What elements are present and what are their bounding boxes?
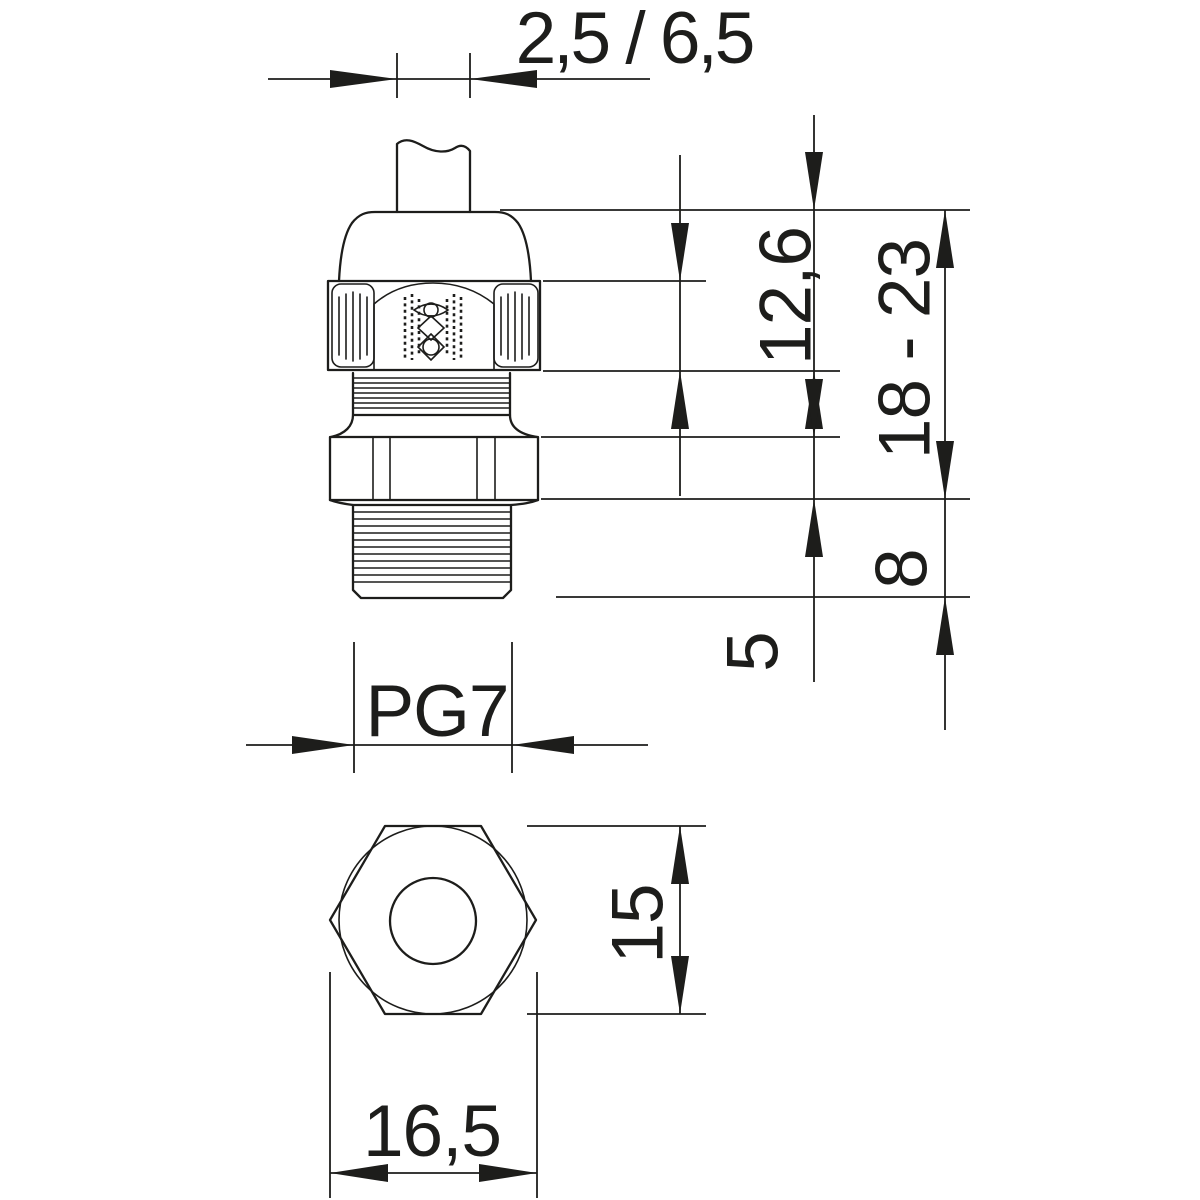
technical-drawing-page: 2,5 / 6,5 12,6 5 18 - 23 8 [0,0,1200,1200]
neck-upper [331,415,537,437]
arrow-right-icon [292,736,354,754]
arrow-down-icon [671,956,689,1014]
dimension-hex-height [671,155,689,496]
label-across-corners: 16,5 [363,1091,501,1172]
brand-mark-circle [423,339,439,355]
dimension-total-height: 18 - 23 8 [861,210,954,730]
rib-lines [353,378,510,408]
flange-facet-lines [373,437,495,500]
dimension-across-corners: 16,5 [330,972,537,1198]
dimension-clamping-range: 2,5 / 6,5 [268,0,753,98]
arrow-right-icon [330,70,397,88]
dimension-across-flats: 15 [527,826,706,1014]
arrow-up-icon [805,499,823,557]
arrow-up-icon [671,826,689,884]
dimension-thread-size: PG7 [246,642,648,773]
knurl-lines-right [501,292,529,361]
cable-gland-dimension-drawing: 2,5 / 6,5 12,6 5 18 - 23 8 [0,0,1200,1200]
arrow-up-icon [671,371,689,429]
brand-mark-hatch-diamond [418,316,444,340]
label-total-height-range: 18 - 23 [864,239,945,459]
label-thread-size: PG7 [365,671,508,752]
brand-mark-diamond [418,334,444,360]
hexagon-outline [330,826,536,1014]
arrow-down-icon [671,223,689,281]
label-cap-hex-height: 12,6 [745,227,826,365]
label-thread-length: 8 [861,549,942,589]
extension-ticks [397,53,470,98]
label-flange-height: 5 [712,632,793,672]
label-across-flats: 15 [597,884,678,963]
flange-nut [330,437,538,505]
arrow-left-icon [512,736,574,754]
thread-lines [353,512,511,582]
cable-hole-circle [390,878,476,964]
brand-mark-lens-circle [424,303,438,317]
arrow-down-icon [805,152,823,210]
cap-dome [339,212,531,281]
side-view [328,140,540,598]
knurl-lines-left [339,292,367,361]
rib-section [331,373,537,437]
arrow-up-icon [936,597,954,655]
bottom-view [330,826,536,1014]
thread-section [353,505,511,598]
label-clamping-range: 2,5 / 6,5 [516,0,753,79]
cable-break [397,140,470,212]
